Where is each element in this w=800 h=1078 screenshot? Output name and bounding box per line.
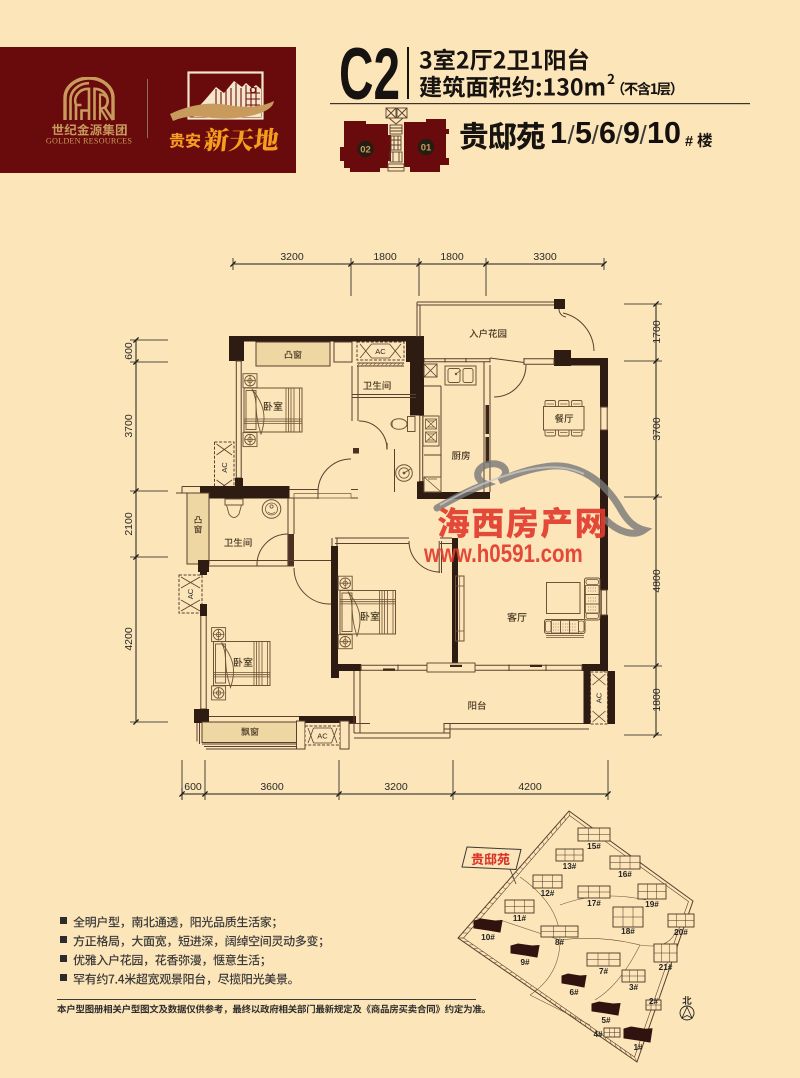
svg-text:8#: 8#: [555, 938, 565, 947]
svg-text:1#: 1#: [633, 1043, 643, 1052]
svg-text:AC: AC: [595, 692, 604, 703]
svg-text:2100: 2100: [123, 512, 135, 536]
svg-text:4200: 4200: [123, 627, 135, 651]
svg-text:AC: AC: [375, 347, 386, 356]
svg-text:3600: 3600: [260, 781, 284, 793]
svg-text:1800: 1800: [651, 688, 663, 712]
svg-text:3700: 3700: [123, 414, 135, 438]
svg-text:6#: 6#: [569, 988, 579, 997]
svg-text:1800: 1800: [373, 251, 397, 263]
svg-text:AC: AC: [186, 588, 195, 599]
svg-text:3200: 3200: [280, 251, 304, 263]
svg-text:www.h0591.com: www.h0591.com: [423, 539, 583, 567]
svg-text:17#: 17#: [587, 899, 601, 908]
svg-text:9#: 9#: [520, 958, 530, 967]
svg-text:AC: AC: [220, 462, 229, 473]
svg-text:11#: 11#: [513, 914, 527, 923]
svg-text:16#: 16#: [618, 870, 632, 879]
svg-text:21#: 21#: [659, 963, 673, 972]
svg-text:15#: 15#: [587, 842, 601, 851]
svg-text:18#: 18#: [621, 927, 635, 936]
svg-text:10#: 10#: [481, 933, 495, 942]
svg-text:4800: 4800: [651, 569, 663, 593]
svg-text:12#: 12#: [541, 889, 555, 898]
svg-text:3#: 3#: [629, 983, 639, 992]
svg-text:AC: AC: [317, 731, 328, 740]
svg-text:4#: 4#: [593, 1030, 603, 1039]
svg-text:4200: 4200: [518, 781, 542, 793]
svg-text:20#: 20#: [674, 928, 688, 937]
svg-text:7#: 7#: [599, 967, 609, 976]
svg-text:2#: 2#: [649, 997, 659, 1006]
svg-text:3300: 3300: [533, 251, 557, 263]
svg-text:3200: 3200: [384, 781, 408, 793]
svg-text:1700: 1700: [651, 320, 663, 344]
svg-text:19#: 19#: [645, 900, 659, 909]
svg-text:3700: 3700: [651, 417, 663, 441]
svg-text:13#: 13#: [563, 862, 577, 871]
svg-text:5#: 5#: [601, 1016, 611, 1025]
svg-text:600: 600: [184, 781, 202, 793]
svg-text:1800: 1800: [440, 251, 464, 263]
svg-text:600: 600: [123, 342, 135, 360]
